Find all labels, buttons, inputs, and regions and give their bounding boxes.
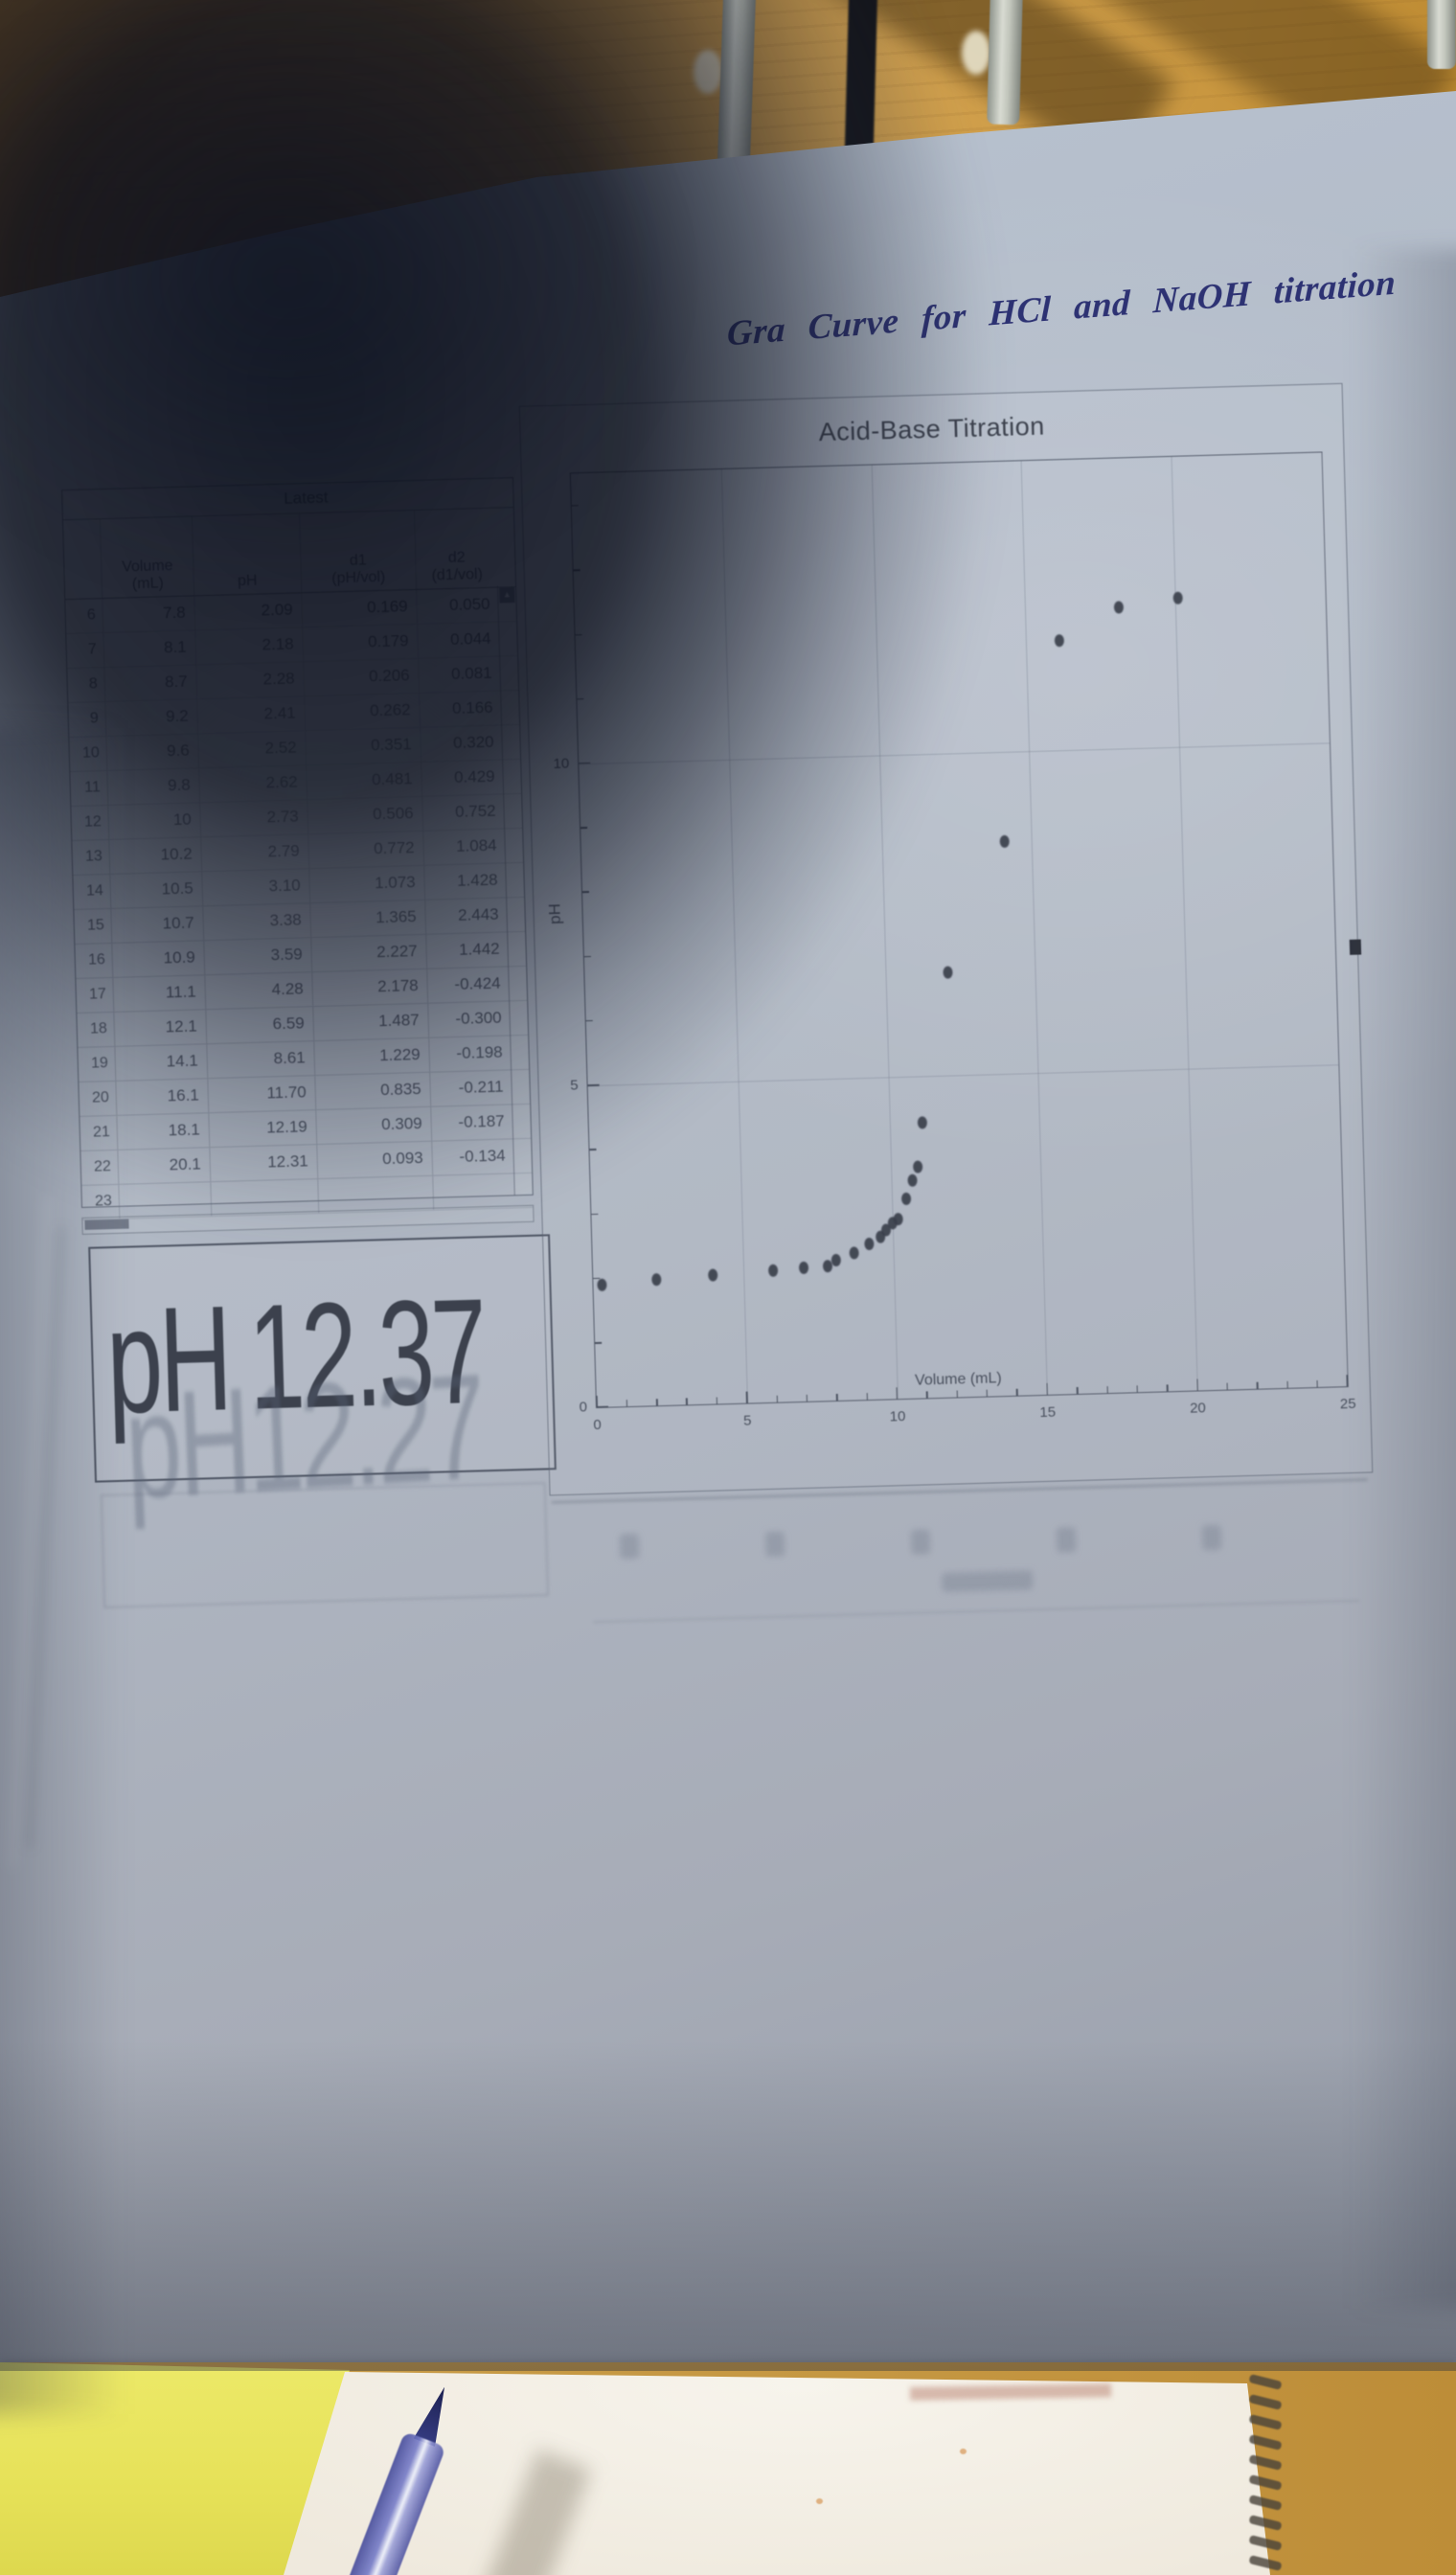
vertical-gridline xyxy=(721,469,748,1403)
table-cell: 23 xyxy=(81,1185,119,1219)
printed-loggerpro-page: Latest Volume (mL) pH d1 (pH/vol) d2 (d1… xyxy=(0,0,1456,1840)
table-cell: 0.835 xyxy=(314,1073,430,1109)
data-point xyxy=(708,1268,717,1281)
ghost-tick-smudge xyxy=(1202,1525,1222,1551)
x-tick-label: 5 xyxy=(732,1412,762,1429)
rack-rod-right-corner xyxy=(1427,0,1456,69)
x-axis-tick xyxy=(626,1400,628,1406)
table-cell: 20.1 xyxy=(117,1148,210,1184)
spiral-binding xyxy=(1245,2378,1291,2575)
table-cell xyxy=(118,1182,211,1219)
data-point xyxy=(798,1262,808,1274)
y-axis-label: pH xyxy=(545,902,565,923)
x-axis-tick xyxy=(717,1397,718,1403)
horizontal-gridline xyxy=(579,742,1330,764)
table-cell: -0.187 xyxy=(430,1105,513,1140)
data-point xyxy=(598,1278,607,1290)
x-axis-tick xyxy=(1016,1389,1018,1396)
table-cell xyxy=(210,1179,318,1216)
axis-handle xyxy=(1350,940,1361,955)
table-cell: 1.487 xyxy=(312,1004,428,1040)
x-axis-tick xyxy=(746,1392,748,1403)
column-header-ph: pH xyxy=(192,513,301,595)
data-point xyxy=(831,1254,841,1266)
y-tick-label: 10 xyxy=(540,755,569,772)
x-axis-tick xyxy=(987,1390,989,1397)
table-cell: 12.1 xyxy=(113,1010,206,1046)
y-axis-tick xyxy=(595,1342,602,1344)
x-tick-label: 25 xyxy=(1332,1396,1363,1413)
table-cell: 1.229 xyxy=(313,1038,429,1075)
table-cell: 14.1 xyxy=(114,1044,207,1081)
table-cell: 18 xyxy=(77,1013,114,1047)
x-axis-tick xyxy=(656,1399,658,1405)
y-axis-tick xyxy=(597,1406,608,1408)
vertical-gridline xyxy=(871,466,898,1400)
x-axis-tick xyxy=(866,1393,868,1400)
horizontal-gridline xyxy=(588,1064,1339,1086)
y-axis-tick xyxy=(582,891,589,893)
x-axis-tick xyxy=(686,1398,688,1404)
spiral-dash xyxy=(1248,2474,1282,2491)
desk-speck xyxy=(816,2498,823,2504)
x-axis-tick xyxy=(1137,1385,1139,1392)
x-axis-tick xyxy=(1347,1375,1349,1386)
data-point xyxy=(893,1213,902,1225)
data-point xyxy=(907,1174,917,1187)
spiral-dash xyxy=(1248,2515,1282,2531)
data-point xyxy=(1055,634,1064,647)
x-tick-label: 15 xyxy=(1033,1403,1063,1421)
data-point xyxy=(651,1273,661,1286)
desk-speck xyxy=(960,2449,967,2454)
y-axis-tick xyxy=(575,634,581,636)
y-axis-tick xyxy=(584,956,591,958)
table-cell: 17 xyxy=(76,978,113,1013)
table-cell: 7 xyxy=(66,633,103,668)
x-axis-label: Volume (mL) xyxy=(915,1370,1002,1390)
table-cell: -0.211 xyxy=(429,1070,512,1105)
x-axis-tick xyxy=(1257,1382,1259,1389)
x-axis-tick xyxy=(776,1396,778,1402)
x-axis-tick xyxy=(1286,1381,1288,1388)
y-axis-tick xyxy=(577,698,583,700)
row-number-column-header xyxy=(63,519,102,599)
x-tick-label: 10 xyxy=(882,1408,913,1425)
data-point xyxy=(1173,591,1183,604)
table-cell: 16 xyxy=(75,944,112,978)
data-point xyxy=(849,1246,858,1259)
y-tick-label: 0 xyxy=(558,1399,587,1416)
x-axis-tick xyxy=(1196,1379,1198,1390)
plot-area: pH 05101520250510 xyxy=(570,451,1349,1408)
spiral-dash xyxy=(1248,2394,1282,2410)
vertical-gridline xyxy=(1322,452,1349,1386)
x-axis-tick xyxy=(1106,1386,1108,1393)
x-axis-tick xyxy=(926,1391,928,1398)
spiral-dash xyxy=(1248,2454,1282,2471)
ph-meter: pH12.37 pH12.27 xyxy=(88,1234,557,1482)
y-axis-tick xyxy=(580,827,587,829)
table-cell: 0.093 xyxy=(316,1142,432,1178)
table-column-headers: Volume (mL) pH d1 (pH/vol) d2 (d1/vol) xyxy=(63,508,515,600)
chart-title: Acid-Base Titration xyxy=(520,403,1343,456)
spiral-dash xyxy=(1248,2414,1282,2430)
spiral-dash xyxy=(1248,2555,1282,2571)
table-cell: 11.70 xyxy=(207,1076,315,1112)
x-axis-tick xyxy=(1077,1387,1079,1394)
data-point xyxy=(913,1161,922,1174)
ghost-tick-smudge xyxy=(765,1532,785,1558)
table-cell: 11.1 xyxy=(112,975,205,1012)
ghost-meter-frame xyxy=(101,1483,548,1608)
x-axis-tick xyxy=(1317,1380,1319,1387)
table-cell: 12.19 xyxy=(208,1110,316,1147)
y-axis-tick xyxy=(591,1214,598,1216)
y-axis-tick xyxy=(572,505,579,507)
table-cell: 21 xyxy=(80,1116,117,1151)
table-cell: 6.59 xyxy=(205,1007,313,1043)
data-point xyxy=(864,1238,874,1250)
x-axis-tick xyxy=(596,1396,598,1407)
spiral-dash xyxy=(1248,2535,1282,2551)
data-point xyxy=(1000,834,1010,847)
x-tick-label: 0 xyxy=(581,1417,612,1434)
spiral-dash xyxy=(1248,2434,1282,2450)
table-cell: 6 xyxy=(65,599,102,633)
table-cell: 12.31 xyxy=(209,1145,317,1181)
table-cell xyxy=(432,1174,515,1209)
table-cell: 16.1 xyxy=(115,1079,208,1115)
ghost-tick-smudge xyxy=(1057,1527,1077,1553)
x-axis-tick xyxy=(1046,1383,1048,1395)
table-cell: 8.61 xyxy=(206,1041,314,1078)
ghost-frame-line xyxy=(593,1600,1359,1623)
table-cell: -0.300 xyxy=(427,1001,511,1037)
x-axis-tick xyxy=(897,1387,899,1399)
data-point xyxy=(944,967,953,979)
table-cell: -0.134 xyxy=(431,1139,514,1174)
table-cell: -0.198 xyxy=(428,1036,512,1071)
x-tick-label: 20 xyxy=(1182,1400,1213,1417)
data-point xyxy=(918,1116,927,1128)
table-cell: 0.309 xyxy=(315,1107,431,1144)
ghost-tick-smudge xyxy=(911,1529,931,1555)
y-axis-tick xyxy=(574,569,580,571)
y-axis-tick xyxy=(590,1149,597,1151)
x-axis-tick xyxy=(836,1394,838,1401)
scroll-up-icon[interactable]: ▲ xyxy=(499,586,514,603)
column-header-d1: d1 (pH/vol) xyxy=(299,511,416,592)
column-header-d2: d2 (d1/vol) xyxy=(414,509,498,589)
x-axis-tick xyxy=(1167,1384,1169,1391)
table-cell: 22 xyxy=(80,1151,118,1185)
x-axis-tick xyxy=(956,1390,958,1397)
column-header-volume: Volume (mL) xyxy=(100,516,193,598)
x-axis-tick xyxy=(1227,1383,1229,1390)
y-tick-label: 5 xyxy=(549,1077,578,1094)
y-axis-tick xyxy=(586,1020,593,1022)
data-point xyxy=(1113,601,1123,613)
table-cell: 18.1 xyxy=(116,1113,209,1150)
ghost-tick-smudge xyxy=(620,1534,640,1560)
data-point xyxy=(901,1193,911,1205)
scrollbar-thumb[interactable] xyxy=(84,1219,128,1230)
photo-of-titration-printout: Gra Curve for HCl and NaOH titration Lat… xyxy=(0,0,1456,2575)
x-axis-tick xyxy=(807,1395,808,1401)
spiral-dash xyxy=(1248,2495,1282,2511)
ghost-label-smudge xyxy=(942,1570,1034,1592)
table-cell: 19 xyxy=(78,1047,115,1082)
table-cell: 20 xyxy=(79,1082,116,1116)
data-point xyxy=(768,1264,778,1276)
vertical-gridline xyxy=(1021,461,1048,1395)
titration-chart: Acid-Base Titration pH 05101520250510 Vo… xyxy=(519,383,1373,1496)
